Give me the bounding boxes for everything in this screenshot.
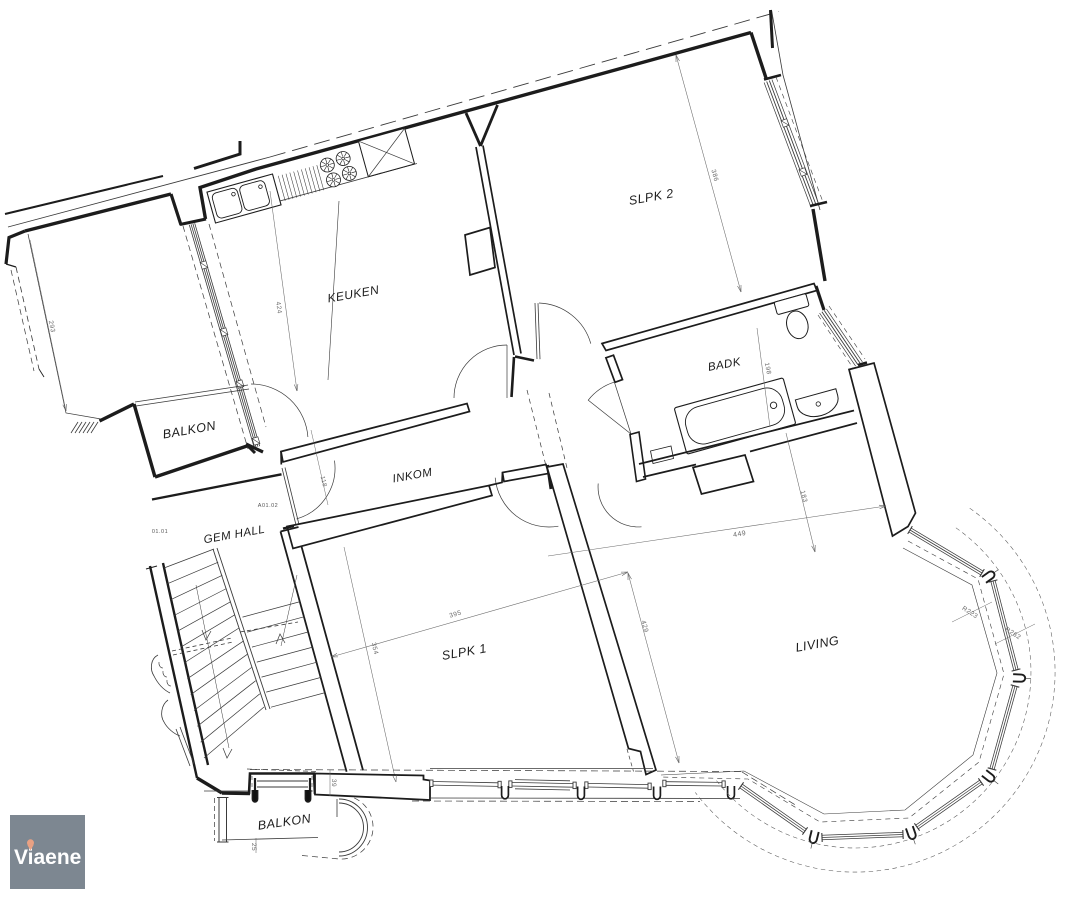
svg-text:39: 39 xyxy=(330,779,337,787)
svg-text:Viaene: Viaene xyxy=(14,846,81,869)
svg-text:25: 25 xyxy=(250,843,257,851)
svg-text:01.01: 01.01 xyxy=(152,529,168,535)
svg-text:A01.02: A01.02 xyxy=(258,503,278,509)
